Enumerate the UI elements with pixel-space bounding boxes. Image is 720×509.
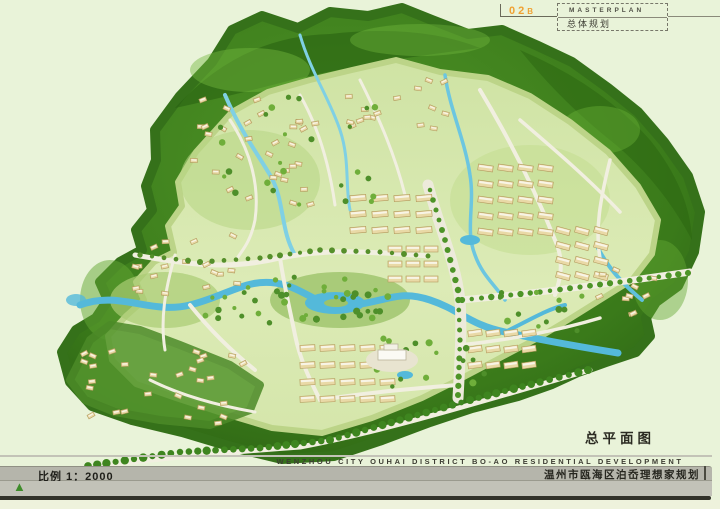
page-margin <box>0 500 720 509</box>
title-zh: 总体规划 <box>558 18 667 31</box>
title-block: MASTERPLAN 总体规划 <box>557 3 668 31</box>
banner-strip-lower <box>0 481 712 497</box>
north-arrow-icon: ▲ <box>13 479 26 494</box>
map-label: 总平面图 <box>585 427 655 447</box>
project-title-en: WENZHOU CITY OUHAI DISTRICT BO-AO RESIDE… <box>260 457 700 467</box>
title-block-right-rule <box>668 16 720 17</box>
page: { "title_block": { "code": "02", "code_s… <box>0 0 720 509</box>
sheet-number: 02B <box>509 5 533 17</box>
banner-end-tick <box>704 466 706 480</box>
title-en: MASTERPLAN <box>558 4 667 18</box>
sheet-edge-bar <box>0 496 711 500</box>
